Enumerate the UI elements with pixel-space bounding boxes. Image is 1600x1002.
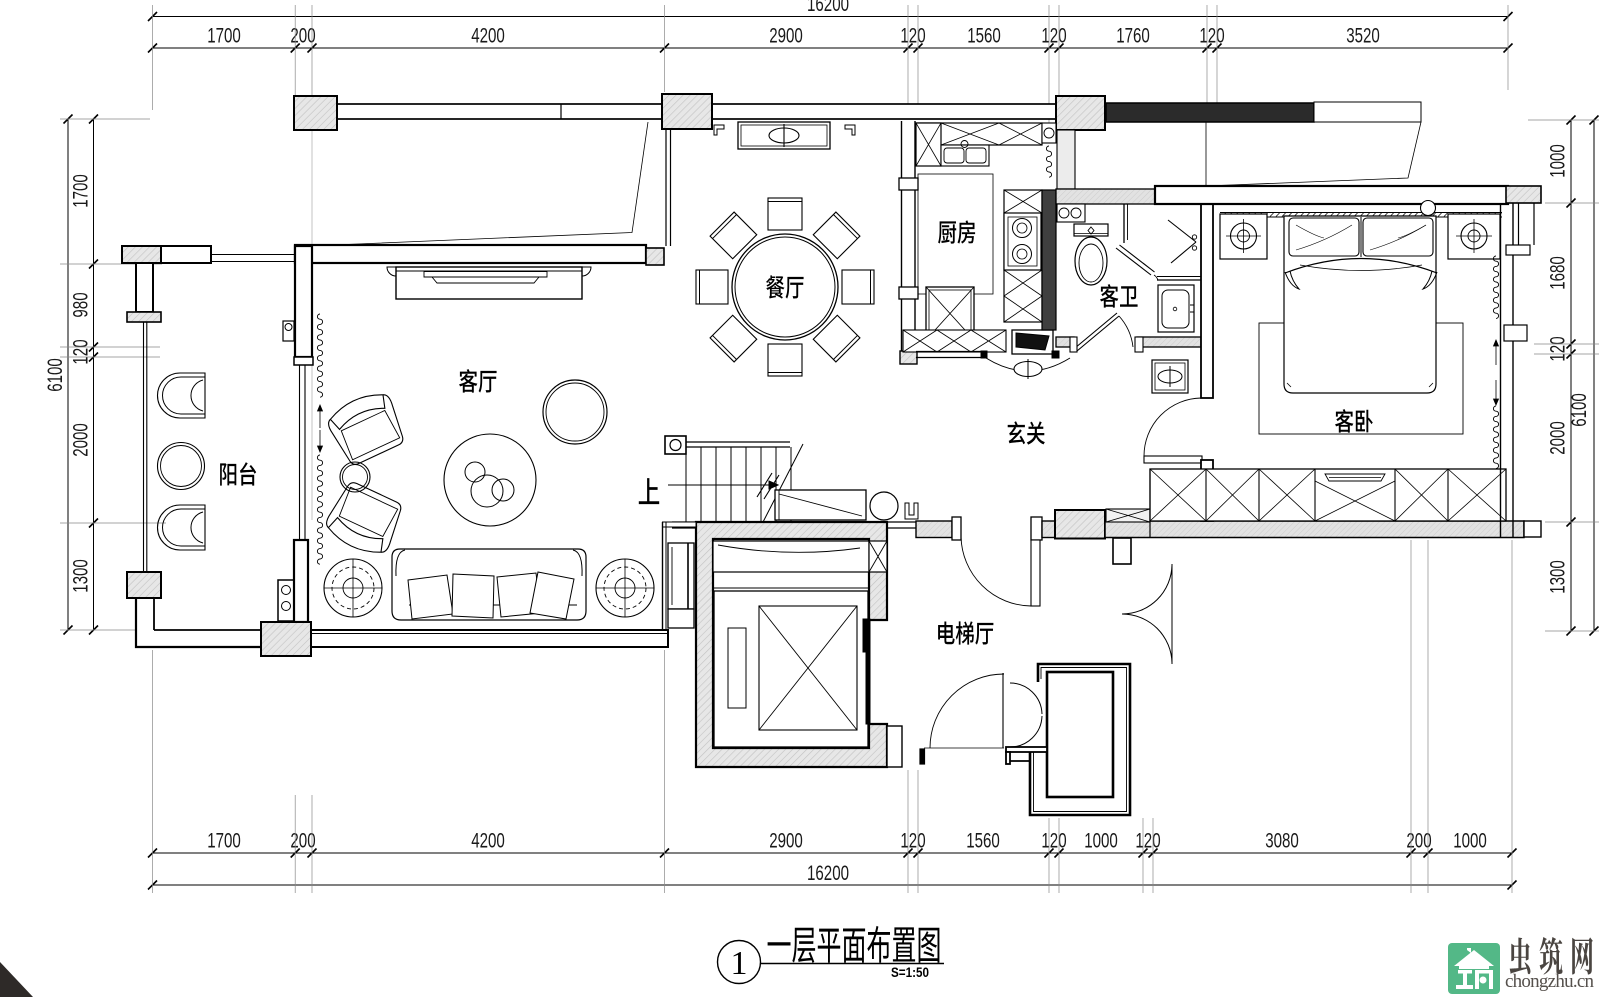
svg-text:120: 120 xyxy=(900,25,925,48)
svg-text:120: 120 xyxy=(1041,830,1066,853)
svg-text:2000: 2000 xyxy=(1547,421,1570,455)
svg-text:1760: 1760 xyxy=(1116,25,1150,48)
svg-text:1300: 1300 xyxy=(1547,560,1570,594)
svg-text:120: 120 xyxy=(1199,25,1224,48)
svg-text:1700: 1700 xyxy=(70,174,93,208)
svg-text:4200: 4200 xyxy=(471,830,505,853)
svg-text:S=1:50: S=1:50 xyxy=(891,964,929,980)
svg-text:4200: 4200 xyxy=(471,25,505,48)
svg-text:1560: 1560 xyxy=(967,25,1001,48)
svg-text:16200: 16200 xyxy=(807,862,849,885)
svg-text:1000: 1000 xyxy=(1547,144,1570,178)
svg-text:chongzhu.cn: chongzhu.cn xyxy=(1505,971,1595,992)
svg-text:1680: 1680 xyxy=(1547,256,1570,290)
svg-text:1: 1 xyxy=(731,945,748,982)
svg-text:6100: 6100 xyxy=(44,358,67,392)
svg-text:3520: 3520 xyxy=(1346,25,1380,48)
svg-text:2000: 2000 xyxy=(70,423,93,457)
svg-text:120: 120 xyxy=(1135,830,1160,853)
svg-text:1000: 1000 xyxy=(1084,830,1118,853)
svg-text:120: 120 xyxy=(70,339,93,364)
svg-text:1560: 1560 xyxy=(966,830,1000,853)
svg-text:3080: 3080 xyxy=(1265,830,1299,853)
svg-text:16200: 16200 xyxy=(807,0,849,16)
svg-text:1300: 1300 xyxy=(70,559,93,593)
svg-text:120: 120 xyxy=(1041,25,1066,48)
svg-text:1000: 1000 xyxy=(1453,830,1487,853)
svg-text:2900: 2900 xyxy=(769,25,803,48)
svg-text:1700: 1700 xyxy=(207,25,241,48)
svg-text:2900: 2900 xyxy=(769,830,803,853)
svg-text:120: 120 xyxy=(1547,336,1570,361)
svg-text:980: 980 xyxy=(70,292,93,317)
svg-text:120: 120 xyxy=(900,830,925,853)
svg-text:1700: 1700 xyxy=(207,830,241,853)
